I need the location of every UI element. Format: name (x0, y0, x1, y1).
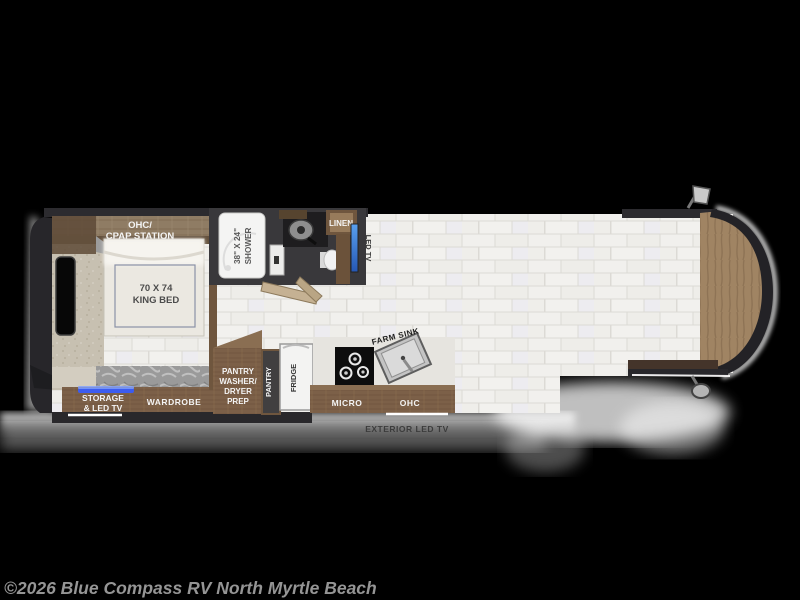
svg-text:PANTRY: PANTRY (222, 367, 255, 376)
svg-text:OHC/: OHC/ (128, 220, 152, 231)
svg-text:LED TV: LED TV (364, 235, 373, 262)
svg-text:LINEN: LINEN (329, 219, 353, 228)
svg-text:EXTERIOR LED TV: EXTERIOR LED TV (365, 424, 449, 434)
svg-text:DRYER: DRYER (224, 387, 252, 396)
svg-text:SHOWER: SHOWER (244, 227, 253, 264)
svg-text:PREP: PREP (227, 397, 249, 406)
svg-text:KING BED: KING BED (133, 295, 180, 306)
svg-text:PANTRY: PANTRY (264, 367, 273, 397)
svg-text:STORAGE: STORAGE (82, 393, 124, 403)
svg-text:38" X 24": 38" X 24" (233, 228, 242, 264)
svg-text:WARDROBE: WARDROBE (147, 397, 202, 407)
svg-text:FRIDGE: FRIDGE (289, 364, 298, 392)
svg-text:& LED TV: & LED TV (84, 403, 123, 413)
svg-text:70 X 74: 70 X 74 (140, 283, 173, 294)
svg-text:WASHER/: WASHER/ (219, 377, 257, 386)
svg-text:MICRO: MICRO (332, 398, 363, 408)
svg-text:OHC: OHC (400, 398, 420, 408)
